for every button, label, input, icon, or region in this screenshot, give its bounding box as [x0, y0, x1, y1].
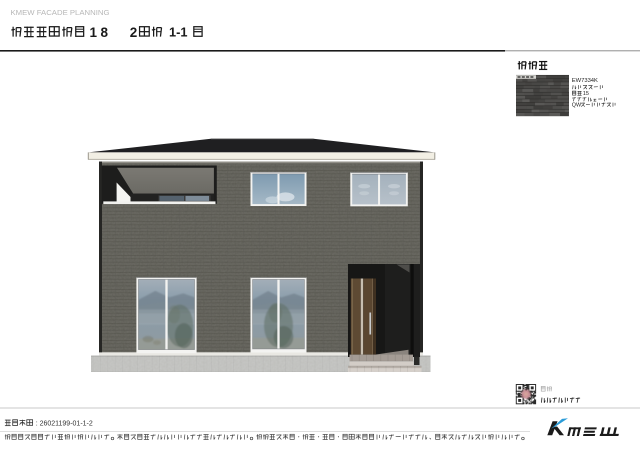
- svg-text:2: 2: [130, 25, 138, 40]
- svg-text:15: 15: [583, 91, 589, 97]
- svg-text:QW: QW: [572, 102, 582, 108]
- svg-text:1-1: 1-1: [169, 25, 188, 40]
- svg-text:1: 1: [90, 25, 98, 40]
- svg-text:8: 8: [101, 25, 109, 40]
- svg-text:EW7334K: EW7334K: [572, 78, 598, 84]
- svg-text:KMEW FACADE PLANNING: KMEW FACADE PLANNING: [11, 8, 110, 17]
- svg-text:: 26021199-01-1-2: : 26021199-01-1-2: [36, 420, 93, 427]
